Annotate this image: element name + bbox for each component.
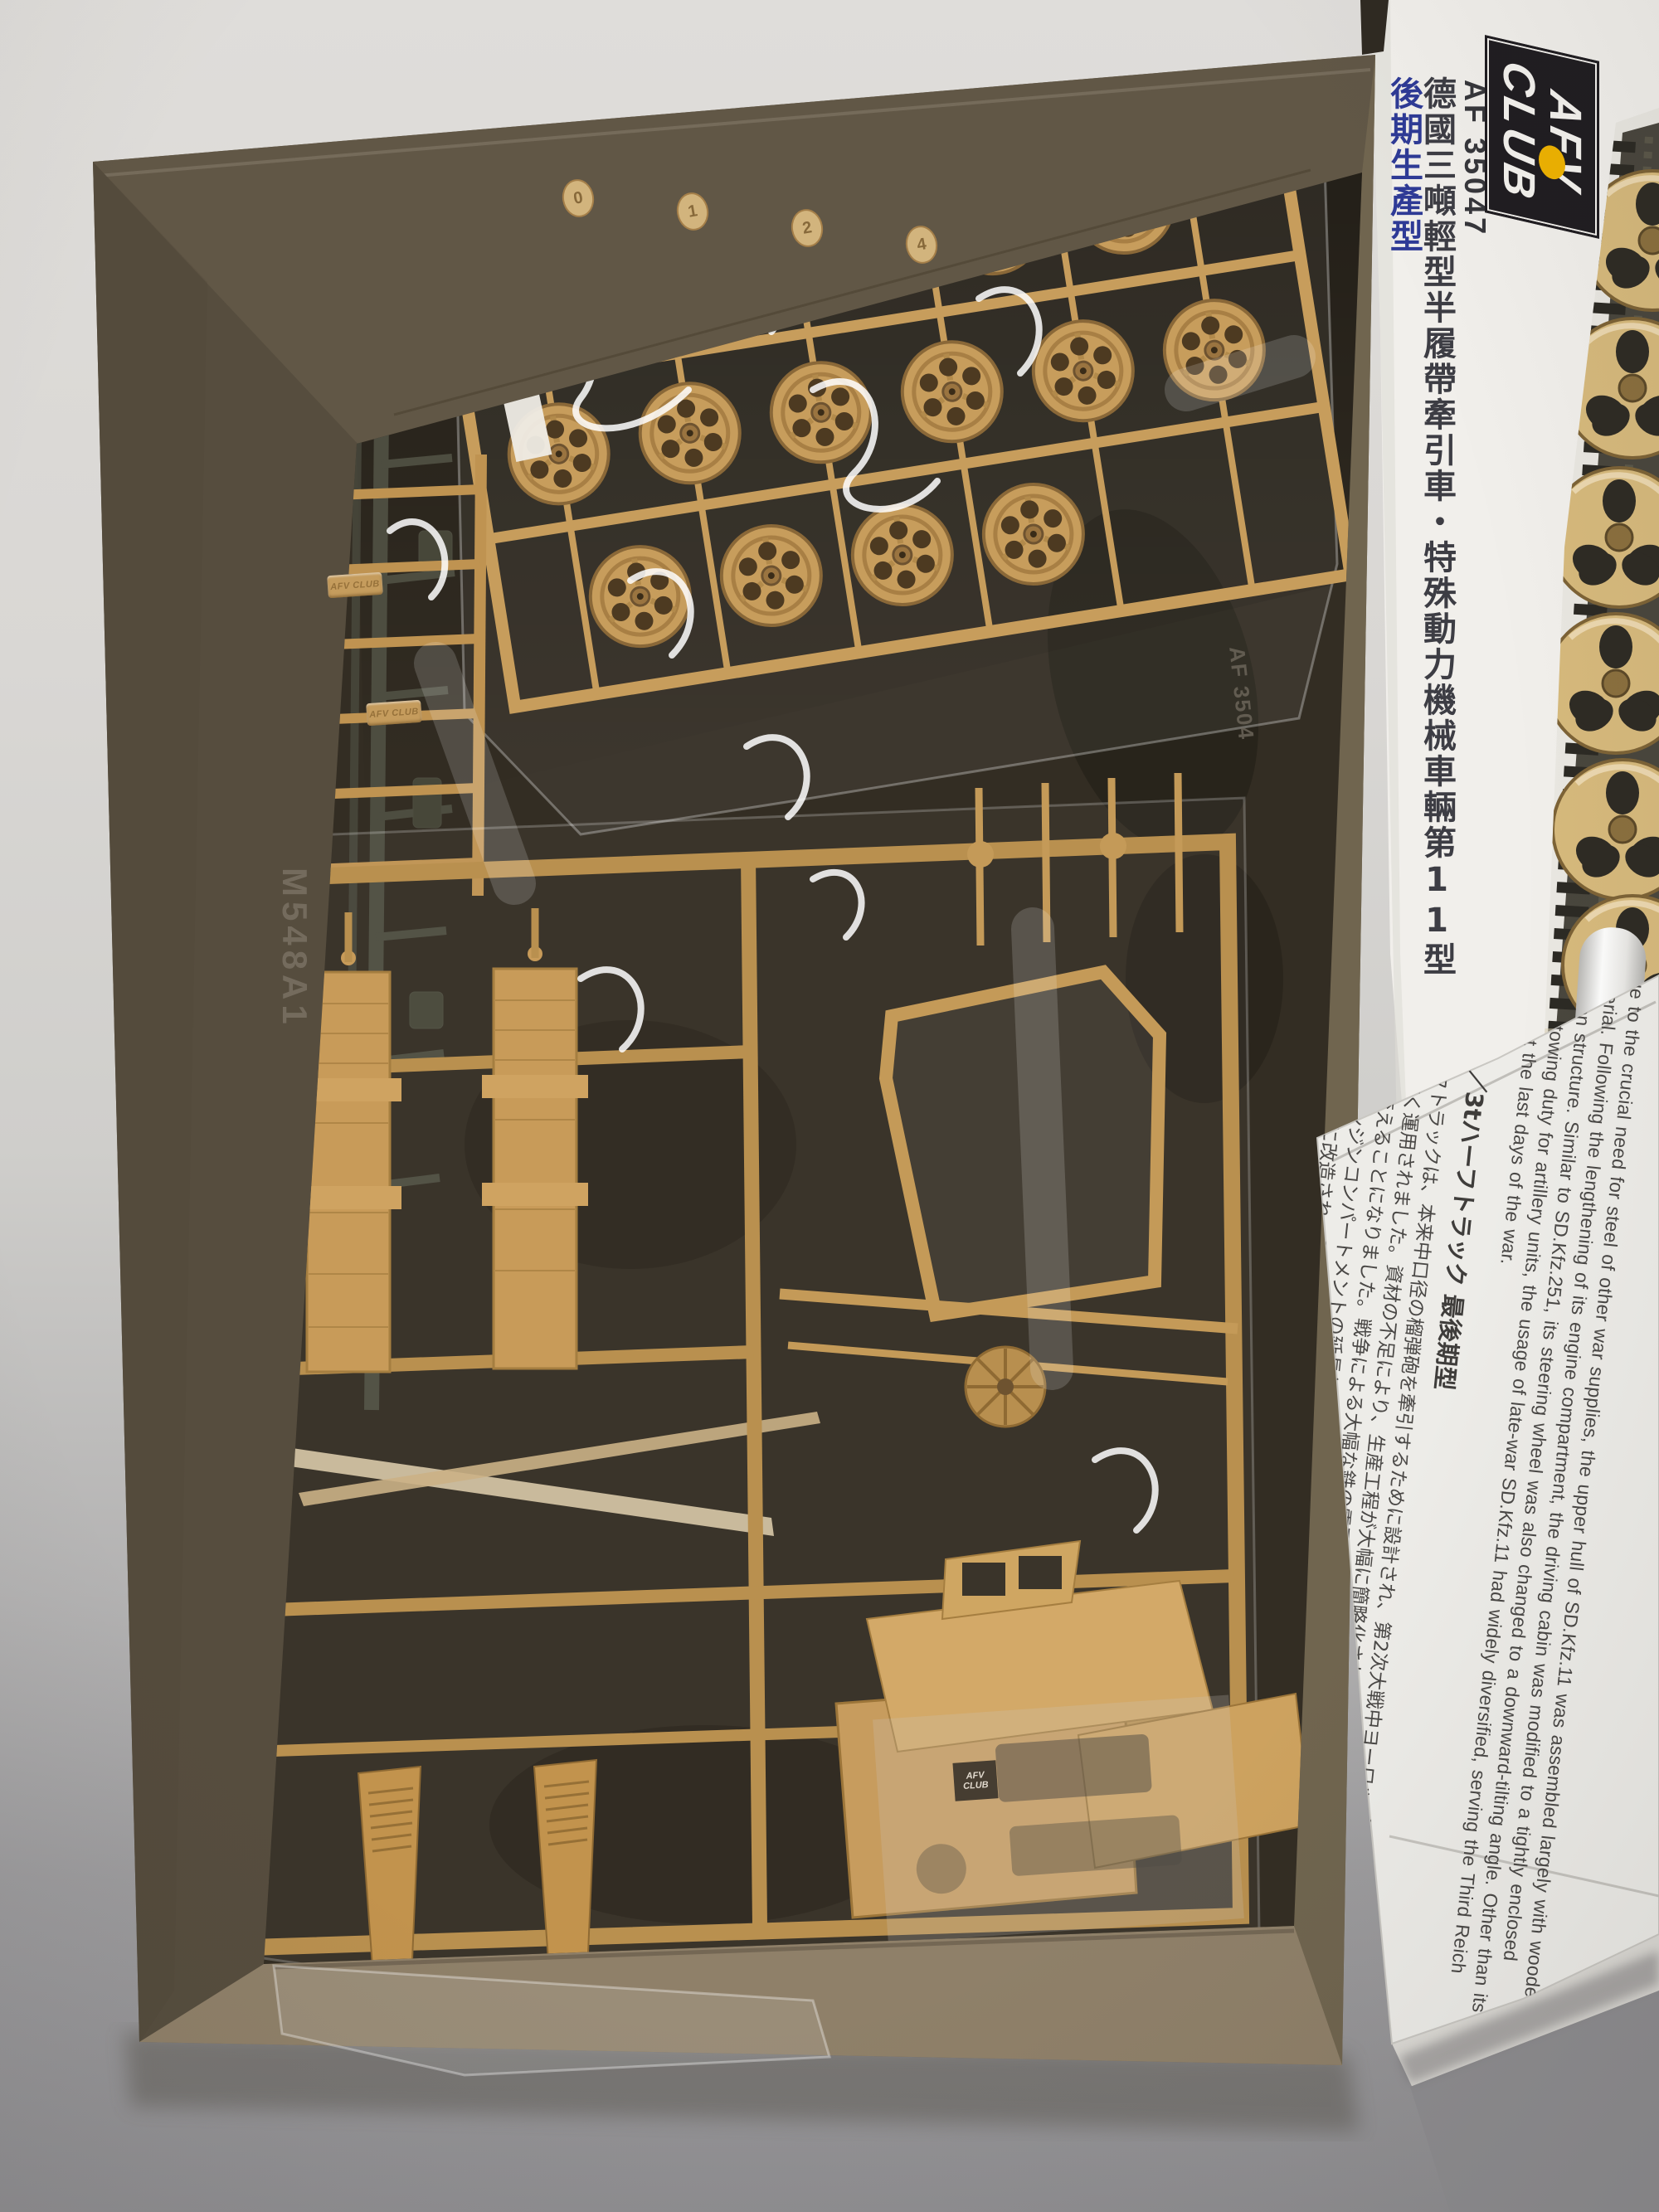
photo-scene: 德國三噸輕型半履帶牽引車・特殊動力機械車輛第11型後期生產型 AF 35047 …: [0, 0, 1659, 2212]
sprue-molded-tag: AFV CLUB: [327, 572, 383, 599]
bag-embossed-code: M548A1: [275, 868, 314, 1029]
afv-club-logo: AFV CLUB: [1485, 48, 1599, 226]
kit-title-main: 德國三噸輕型半履帶牽引車・特殊動力機械車輛第11型: [1418, 76, 1456, 978]
kit-title-sub: 後期生產型: [1384, 76, 1423, 255]
logo-line2: CLUB: [1496, 57, 1542, 206]
sheet-in-bag: [873, 1695, 1244, 1943]
sprue-molded-tag: AFV CLUB: [366, 700, 422, 727]
logo-line1: AFV: [1542, 87, 1588, 197]
mini-printed-logo: AFV CLUB: [952, 1760, 998, 1801]
kit-title-chinese: 德國三噸輕型半履帶牽引車・特殊動力機械車輛第11型後期生產型: [1387, 76, 1453, 1005]
